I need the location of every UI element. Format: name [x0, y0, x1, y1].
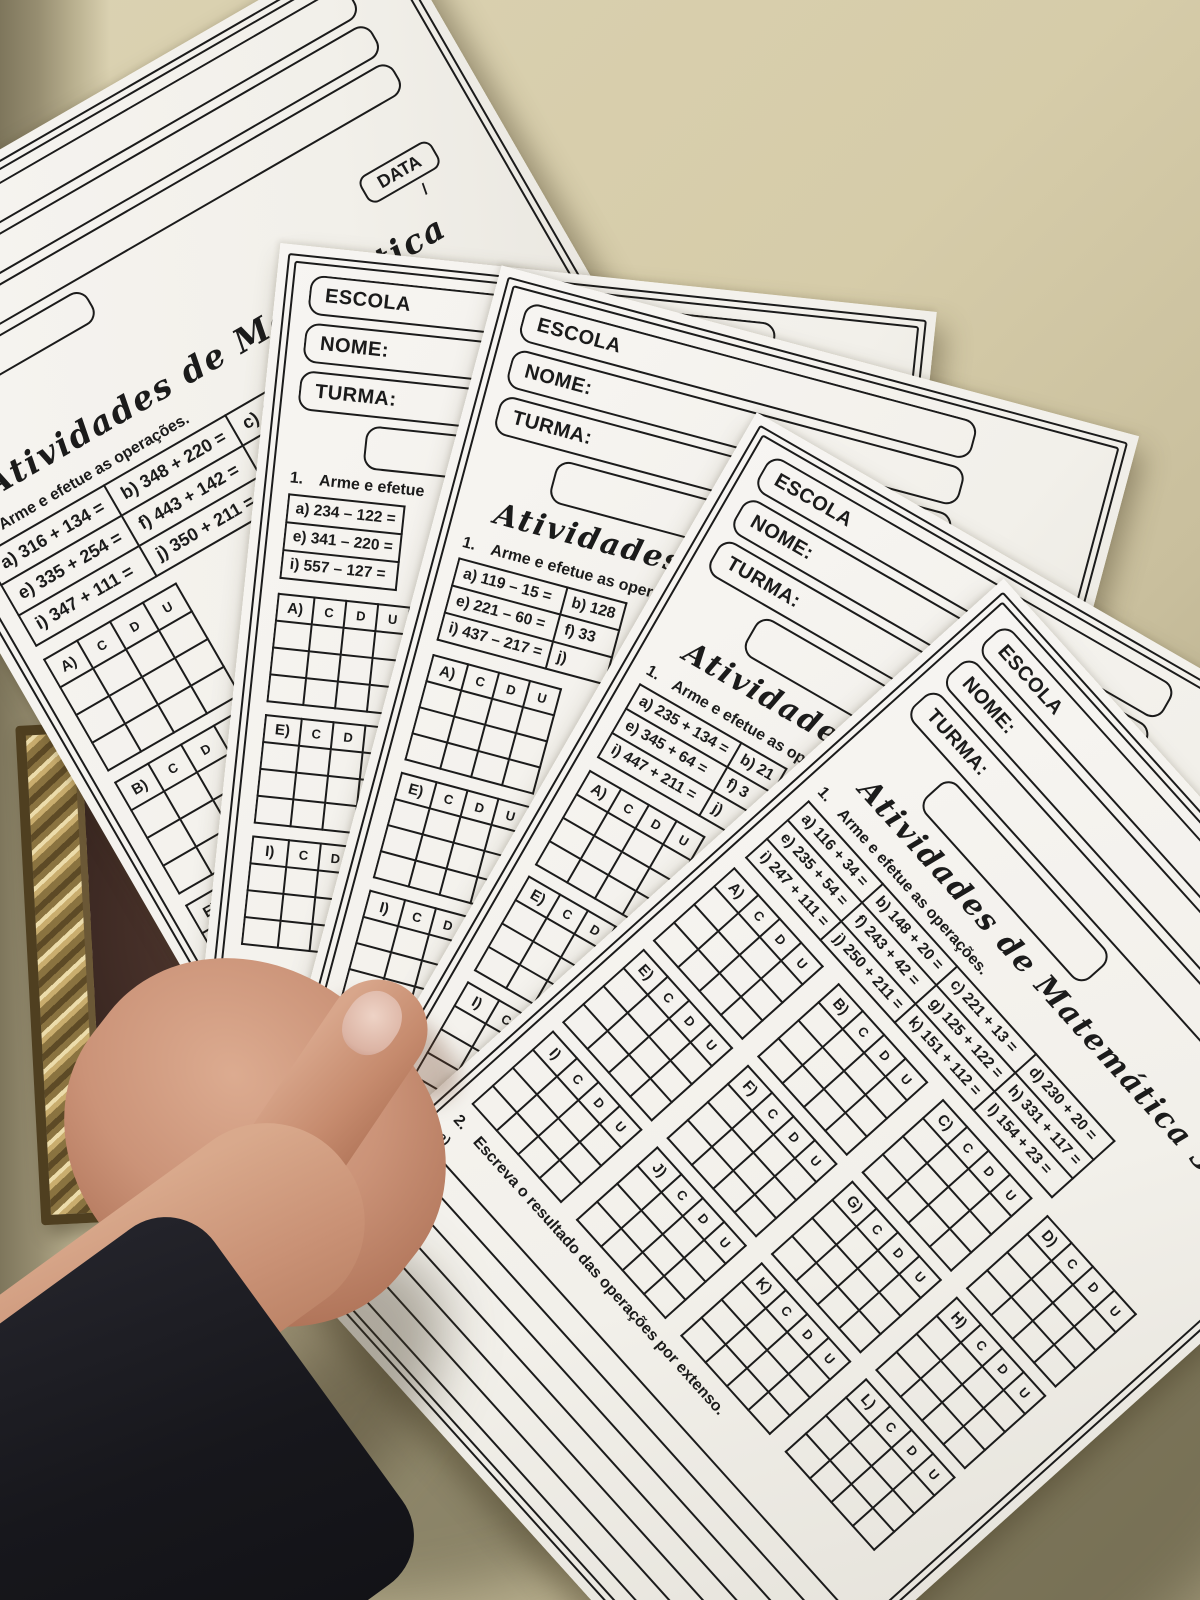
- exercise-number: 1.: [289, 469, 304, 487]
- exercise-number: 1.: [814, 784, 836, 805]
- turma-label: TURMA:: [314, 380, 398, 411]
- escola-label: ESCOLA: [534, 314, 623, 359]
- exercise-number: 1.: [460, 534, 477, 554]
- turma-label: TURMA:: [510, 406, 595, 449]
- nome-label: NOME:: [319, 332, 390, 362]
- exercise-number: 2.: [450, 1112, 472, 1133]
- exercise-number: 1.: [643, 662, 663, 683]
- photo-scene: DATA / Atividades de Matemática 1.Arme e…: [0, 0, 1200, 1600]
- problems-table: a) 234 – 122 =e) 341 – 220 =i) 557 – 127…: [279, 493, 406, 591]
- instruction-text: Arme e efetue: [318, 472, 425, 500]
- nome-label: NOME:: [522, 360, 595, 400]
- cdu-grid: A)CDU: [404, 654, 562, 795]
- escola-label: ESCOLA: [324, 285, 412, 317]
